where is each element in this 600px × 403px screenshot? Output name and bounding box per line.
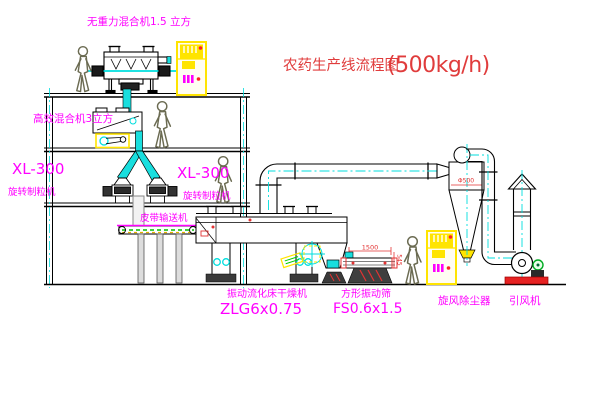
label-belt-conveyor: 皮带输送机 [140, 212, 188, 224]
label-granulator-mid-model: XL-300 [177, 164, 229, 182]
person-figure-ground [405, 237, 422, 284]
flow-diagram-canvas: Φ500 [0, 0, 600, 403]
label-top-mixer: 无重力混合机1.5 立方 [87, 15, 191, 28]
label-screen-model: FS0.6x1.5 [333, 301, 403, 317]
vibrating-screen [341, 247, 397, 283]
cyclone-dim-label: Φ500 [458, 178, 474, 185]
person-figure-floor2 [154, 102, 170, 148]
control-cabinet-roof [177, 42, 206, 95]
diagram-svg: Φ500 [0, 0, 600, 403]
label-dryer-model: ZLG6x0.75 [220, 300, 302, 318]
label-cyclone: 旋风除尘器 [438, 294, 491, 307]
label-floor2-mixer: 高效混合机3立方 [33, 112, 113, 125]
page-title-zh: 农药生产线流程图 [283, 57, 399, 74]
granulator-right [145, 178, 177, 203]
exhaust-duct [256, 163, 450, 214]
label-granulator-mid-name: 旋转制粒机 [183, 190, 231, 202]
belt-conveyor [117, 226, 198, 284]
control-cabinet-ground [427, 231, 456, 284]
gravity-free-mixer [86, 47, 176, 94]
induced-draft-fan [505, 253, 548, 285]
label-screen-name: 方形振动筛 [341, 287, 391, 300]
screen-height-dim: 545 [396, 254, 403, 266]
screen-length-dim: 1500 [362, 244, 379, 252]
label-dryer-name: 振动流化床干燥机 [227, 287, 307, 300]
page-title-capacity: (500kg/h) [387, 53, 490, 78]
granulator-left [103, 178, 135, 203]
label-granulator-left-model: XL-300 [12, 160, 64, 178]
label-fan: 引风机 [509, 294, 541, 307]
label-granulator-left-name: 旋转制粒机 [8, 186, 56, 198]
fluid-bed-dryer [196, 207, 347, 284]
person-figure-roof [75, 47, 91, 92]
